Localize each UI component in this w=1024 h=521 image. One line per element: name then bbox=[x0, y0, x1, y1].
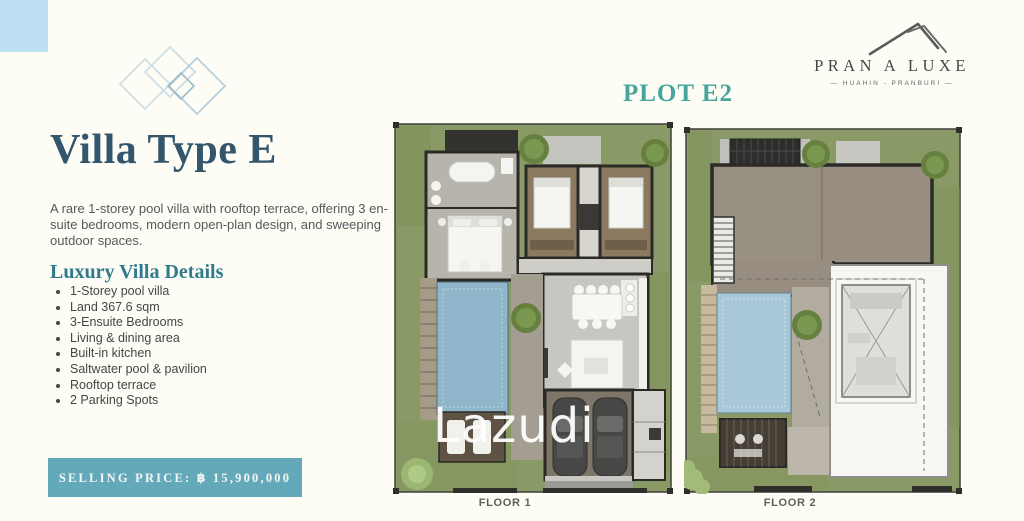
utility-rooms bbox=[633, 390, 665, 480]
diamond-logo-icon bbox=[112, 44, 252, 137]
corner-accent-square bbox=[0, 0, 48, 52]
list-item: 2 Parking Spots bbox=[70, 393, 207, 409]
skylight-roof bbox=[842, 285, 910, 397]
selling-price-banner: SELLING PRICE: ฿ 15,900,000 bbox=[48, 458, 302, 497]
floor1-label: FLOOR 1 bbox=[450, 497, 560, 509]
corridor bbox=[518, 258, 652, 274]
list-item: Saltwater pool & pavilion bbox=[70, 362, 207, 378]
details-list: 1-Storey pool villa Land 367.6 sqm 3-Ens… bbox=[52, 284, 207, 409]
walkway-patch bbox=[788, 427, 832, 475]
kitchen-counter bbox=[639, 278, 647, 402]
brand-logo: PRAN A LUXE — HUAHIN - PRANBURI — bbox=[806, 14, 978, 87]
mountain-roof-icon bbox=[864, 14, 956, 58]
list-item: 3-Ensuite Bedrooms bbox=[70, 315, 207, 331]
hallway bbox=[578, 166, 600, 258]
pool-upper-view bbox=[717, 293, 791, 413]
living-dining-room bbox=[543, 274, 648, 406]
details-heading: Luxury Villa Details bbox=[50, 261, 223, 284]
brand-name: PRAN A LUXE bbox=[806, 56, 978, 76]
solar-panels bbox=[720, 139, 810, 164]
entry-path bbox=[543, 136, 601, 164]
list-item: Land 367.6 sqm bbox=[70, 300, 207, 316]
tree-icon bbox=[511, 303, 541, 333]
tree-icon bbox=[792, 310, 822, 340]
bedroom-3 bbox=[600, 166, 652, 258]
stairs bbox=[713, 217, 734, 283]
car-icon bbox=[593, 398, 627, 476]
list-item: Living & dining area bbox=[70, 331, 207, 347]
tv bbox=[544, 348, 548, 378]
list-item: 1-Storey pool villa bbox=[70, 284, 207, 300]
list-item: Built-in kitchen bbox=[70, 346, 207, 362]
pavilion bbox=[720, 419, 786, 467]
brand-tagline: — HUAHIN - PRANBURI — bbox=[806, 80, 978, 87]
bedroom-2 bbox=[526, 166, 578, 258]
tree-icon bbox=[802, 140, 830, 168]
brochure-page: Villa Type E A rare 1-storey pool villa … bbox=[0, 0, 1024, 521]
pool-deck bbox=[701, 285, 717, 433]
bottom-wall bbox=[453, 488, 647, 493]
roof-pad bbox=[836, 141, 880, 165]
floor2-plan bbox=[684, 127, 962, 494]
bathtub bbox=[449, 162, 495, 182]
tree-icon bbox=[641, 139, 669, 167]
plot-label: PLOT E2 bbox=[598, 80, 758, 108]
list-item: Rooftop terrace bbox=[70, 378, 207, 394]
master-suite bbox=[426, 130, 518, 280]
tree-icon bbox=[921, 151, 949, 179]
palm-tree-icon bbox=[401, 458, 433, 490]
villa-description: A rare 1-storey pool villa with rooftop … bbox=[50, 201, 395, 249]
page-title: Villa Type E bbox=[50, 126, 370, 174]
watermark: Lazudi bbox=[433, 398, 595, 454]
floor2-label: FLOOR 2 bbox=[735, 497, 845, 509]
tree-icon bbox=[519, 134, 549, 164]
